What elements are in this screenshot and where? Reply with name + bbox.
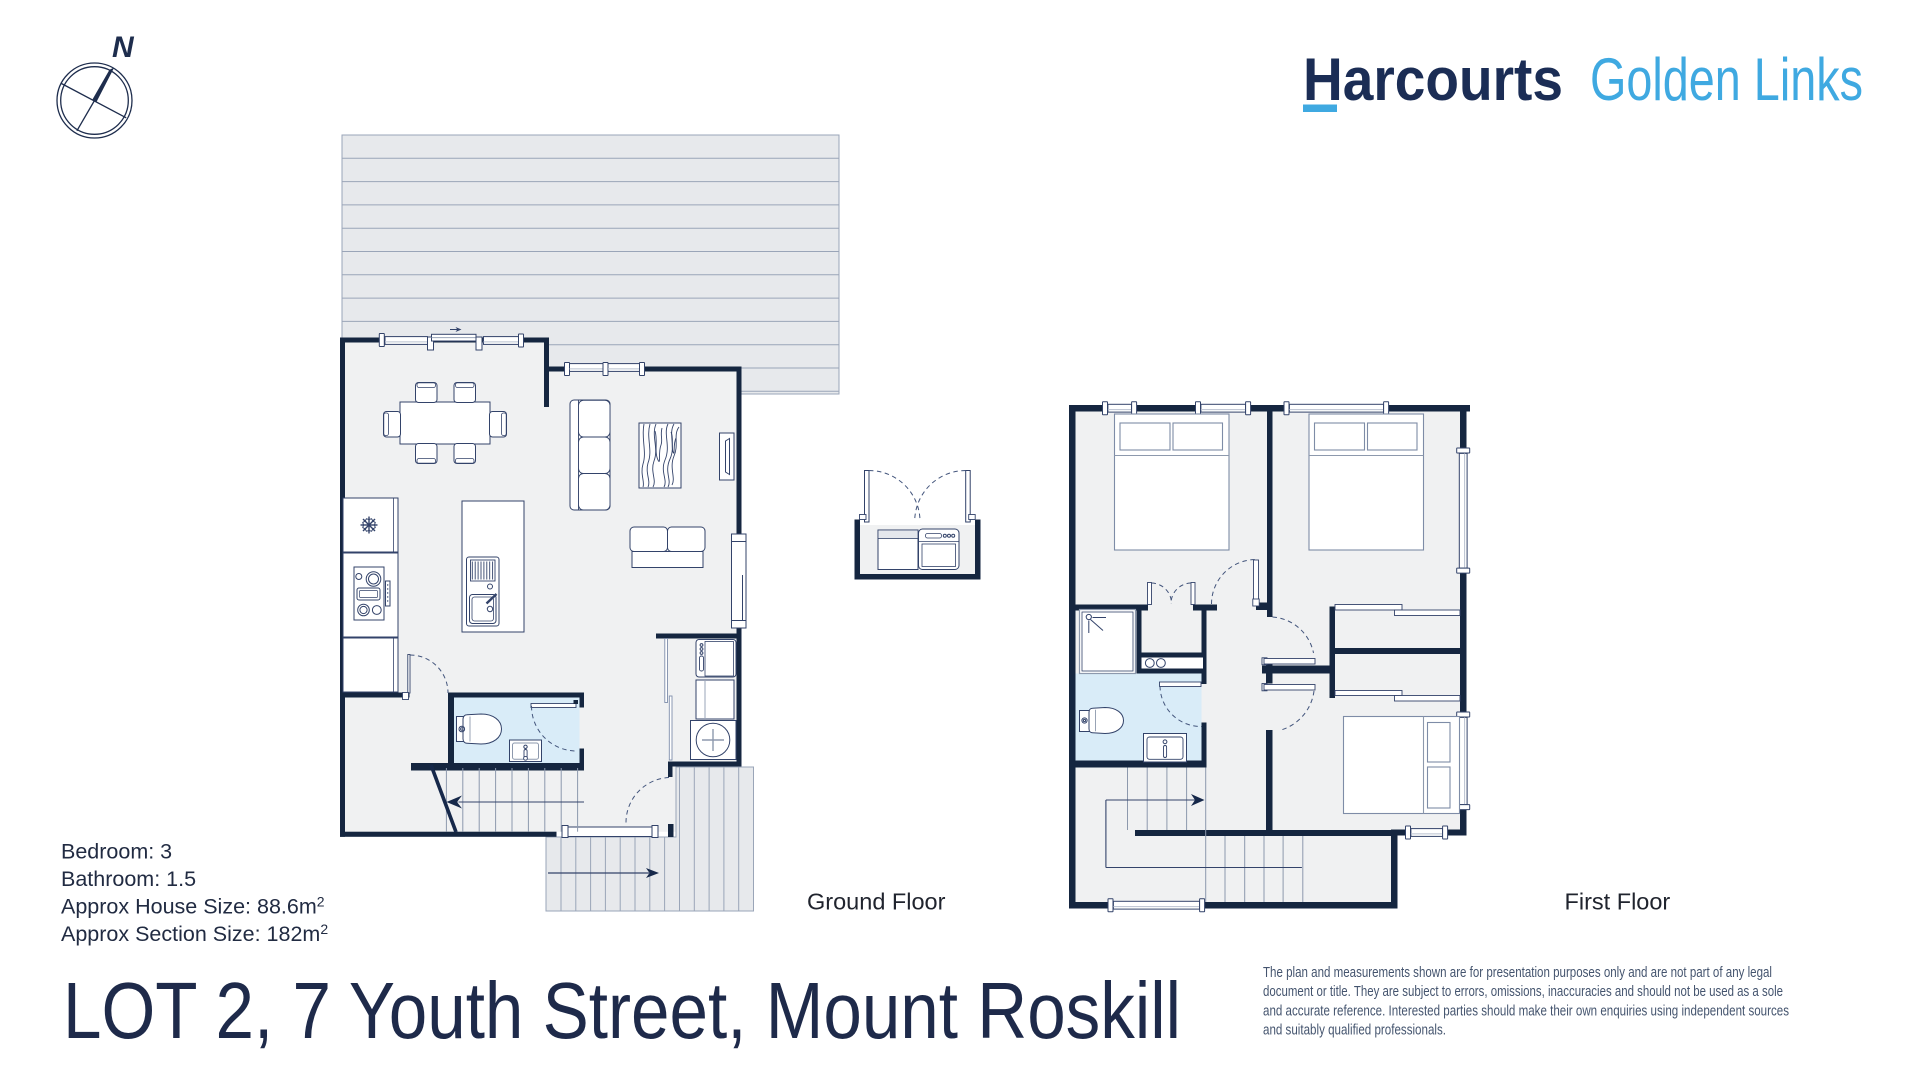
svg-text:and suitably qualified profess: and suitably qualified professionals.: [1263, 1022, 1446, 1039]
svg-text:Approx Section Size: 182m2: Approx Section Size: 182m2: [61, 921, 328, 946]
svg-text:document or title. They are su: document or title. They are subject to e…: [1263, 983, 1783, 1000]
svg-text:Bathroom: 1.5: Bathroom: 1.5: [61, 867, 196, 891]
svg-text:Bedroom: 3: Bedroom: 3: [61, 840, 172, 864]
svg-text:The plan and measurements show: The plan and measurements shown are for …: [1263, 964, 1772, 981]
svg-text:First Floor: First Floor: [1565, 889, 1671, 915]
svg-text:Golden Links: Golden Links: [1590, 46, 1863, 113]
svg-text:N: N: [112, 31, 135, 64]
svg-text:Approx House Size: 88.6m2: Approx House Size: 88.6m2: [61, 894, 325, 919]
svg-text:and accurate reference. Intere: and accurate reference. Interested parti…: [1263, 1002, 1789, 1019]
svg-text:Ground Floor: Ground Floor: [807, 889, 946, 915]
svg-text:Harcourts: Harcourts: [1303, 46, 1563, 113]
svg-text:LOT 2, 7 Youth Street, Mount R: LOT 2, 7 Youth Street, Mount Roskill: [63, 966, 1181, 1055]
